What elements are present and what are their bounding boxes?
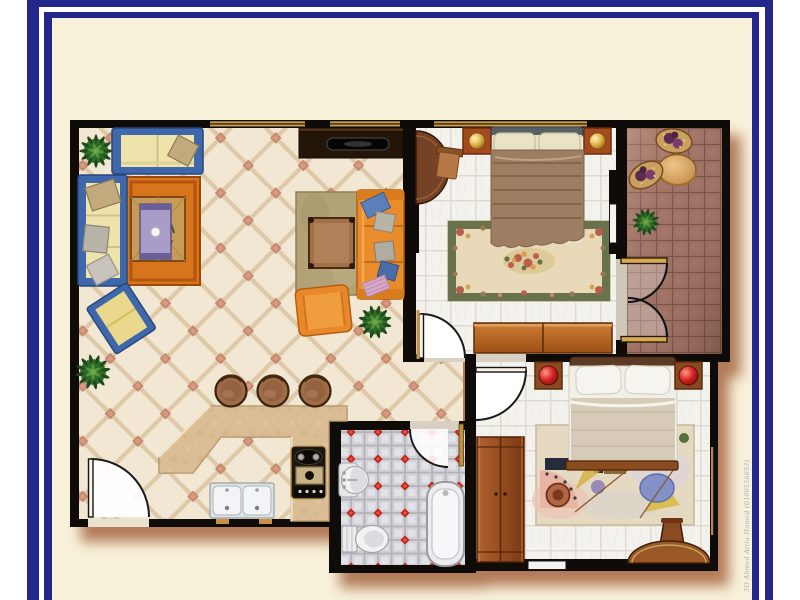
svg-text:3D Ahmed Attia Hamed (01005566: 3D Ahmed Attia Hamed (0100556693) xyxy=(742,460,751,593)
